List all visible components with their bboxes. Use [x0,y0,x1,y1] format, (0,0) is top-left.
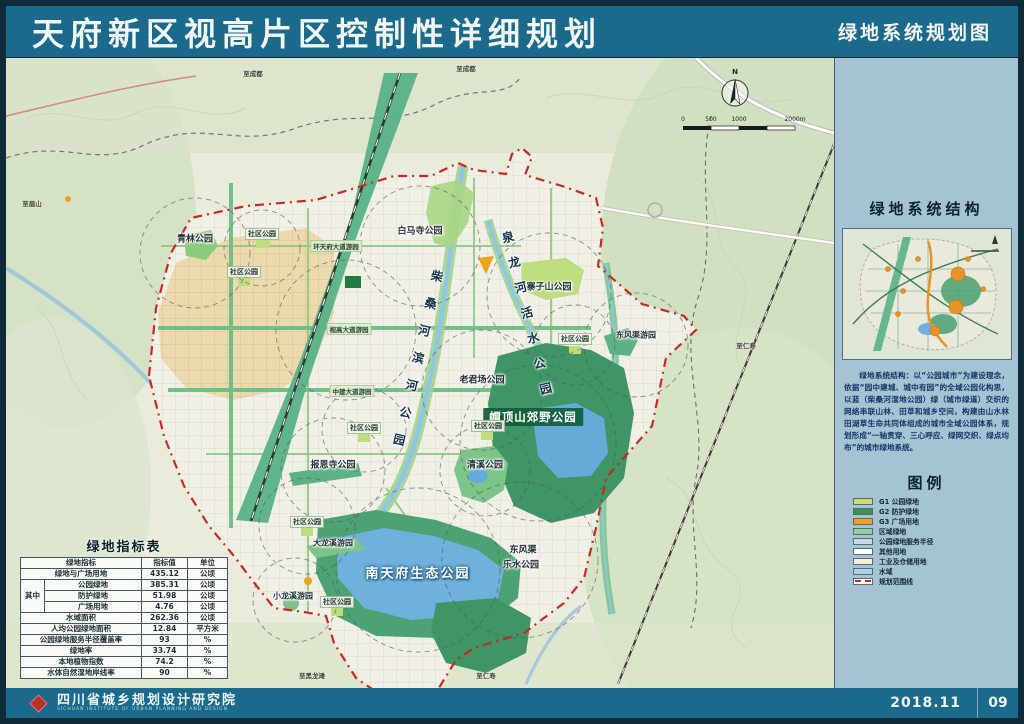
index-table-title: 绿地指标表 [20,536,228,555]
road-garden-label: 中建大道游园 [330,385,375,397]
legend-swatch-plaza [853,518,873,525]
side-panel: 绿地系统结构 [834,58,1018,688]
legend-item: G3 广场用地 [853,516,933,526]
legend-swatch-industrial [853,558,873,565]
table-row: 绿地与广场用地435.12公顷 [21,569,228,580]
page-title: 天府新区视高片区控制性详细规划 [32,9,602,55]
edge-label: 至仁寿 [736,340,756,350]
park-label: 寨子山公园 [526,280,571,293]
legend-item: 水域 [853,566,933,576]
community-park-label: 社区公园 [290,516,324,528]
legend-heading: 图例 [835,472,1018,493]
sheet-date: 2018.11 [874,695,977,711]
institute-name: 四川省城乡规划设计研究院 [57,694,237,707]
structure-inset-map [842,228,1012,360]
legend-swatch-protective-green [853,508,873,515]
community-park-label: 社区公园 [347,422,381,434]
institute-name-en: SICHUAN INSTITUTE OF URBAN PLANNING AND … [57,707,237,713]
table-row: 本地植物指数74.2% [21,657,228,668]
legend-swatch-service-radius [853,538,873,545]
table-row: 水体自然湿地岸线率90% [21,668,228,679]
road-garden-label: 视高大道游园 [327,323,372,335]
institute-logo-icon [29,694,47,712]
structure-map [843,229,1011,359]
legend-item: G2 防护绿地 [853,506,933,516]
sheet-number: 09 [978,695,1018,711]
edge-label: 至眉山 [22,198,42,208]
park-label: 东风渠游园 [616,330,656,341]
institute-block: 四川省城乡规划设计研究院 SICHUAN INSTITUTE OF URBAN … [57,694,237,713]
eco-park-label: 南天府生态公园 [365,563,470,582]
structure-heading: 绿地系统结构 [835,198,1018,219]
park-label: 大龙溪游园 [313,538,353,549]
sheet-subtitle: 绿地系统规划图 [838,18,992,45]
edge-label: 至黑龙滩 [299,670,325,680]
park-label: 清溪公园 [467,458,503,471]
legend-item: 规划范围线 [853,576,933,586]
park-label: 白马寺公园 [397,224,442,237]
structure-description: 绿地系统结构：以“公园城市”为建设理念，依据“园中建城、城中有园”的全域公园化构… [844,370,1009,454]
content: N 0 500 1000 2000m 青林公园 社区公园 社区公园 白马寺公园 [6,58,1018,688]
legend-item: 公园绿地服务半径 [853,536,933,546]
svg-text:N: N [732,68,738,76]
svg-text:500: 500 [705,116,717,123]
park-label: 报恩寺公园 [310,458,355,471]
svg-text:1000: 1000 [731,116,746,123]
legend-swatch-boundary [853,578,873,585]
community-park-label: 社区公园 [227,266,261,278]
table-row: 防护绿地51.98公顷 [21,591,228,602]
green-space-index: 绿地指标表 绿地指标 指标值 单位 绿地与广场用地435.12公顷 其中 公园绿… [20,536,228,679]
protective-green [345,276,361,288]
svg-text:2000m: 2000m [784,116,805,123]
table-row: 人均公园绿地面积12.84平方米 [21,624,228,635]
road-garden-label: 环天府大道游园 [310,240,362,252]
park-label: 小龙溪游园 [273,591,313,602]
park-label: 东风渠 [509,543,536,556]
map-area: N 0 500 1000 2000m 青林公园 社区公园 社区公园 白马寺公园 [6,58,834,688]
edge-label: 至仁寿 [476,670,496,680]
legend-swatch-water [853,568,873,575]
table-row: 绿地率33.74% [21,646,228,657]
table-row: 水域面积262.36公顷 [21,613,228,624]
edge-label: 至成都 [456,63,476,73]
plan-sheet: 天府新区视高片区控制性详细规划 绿地系统规划图 [0,0,1024,724]
legend-item: 区域绿地 [853,526,933,536]
legend-item: G1 公园绿地 [853,496,933,506]
footer-bar: 四川省城乡规划设计研究院 SICHUAN INSTITUTE OF URBAN … [6,688,1018,718]
community-park-label: 社区公园 [471,420,505,432]
legend-item: 工业及仓储用地 [853,556,933,566]
park-label: 乐水公园 [503,558,539,571]
edge-label: 至成都 [243,68,263,78]
legend-swatch-regional-green [853,528,873,535]
col-header: 绿地指标 [21,558,142,569]
legend-list: G1 公园绿地 G2 防护绿地 G3 广场用地 区域绿地 公园绿地服务半径 其他… [853,496,933,586]
col-header: 单位 [188,558,228,569]
title-bar: 天府新区视高片区控制性详细规划 绿地系统规划图 [6,6,1018,58]
table-row: 广场用地4.76公顷 [21,602,228,613]
park-label: 青林公园 [177,232,213,245]
legend-swatch-park-green [853,498,873,505]
community-park-label: 社区公园 [320,596,354,608]
community-park-label: 社区公园 [245,228,279,240]
legend-swatch-other-land [853,548,873,555]
table-row: 其中 公园绿地385.31公顷 [21,580,228,591]
community-park-label: 社区公园 [558,333,592,345]
legend-item: 其他用地 [853,546,933,556]
table-row: 公园绿地服务半径覆盖率93% [21,635,228,646]
green-space-index-table: 绿地指标 指标值 单位 绿地与广场用地435.12公顷 其中 公园绿地385.3… [20,557,228,679]
col-header: 指标值 [142,558,188,569]
park-label: 老君场公园 [459,373,504,386]
svg-text:0: 0 [681,116,685,123]
